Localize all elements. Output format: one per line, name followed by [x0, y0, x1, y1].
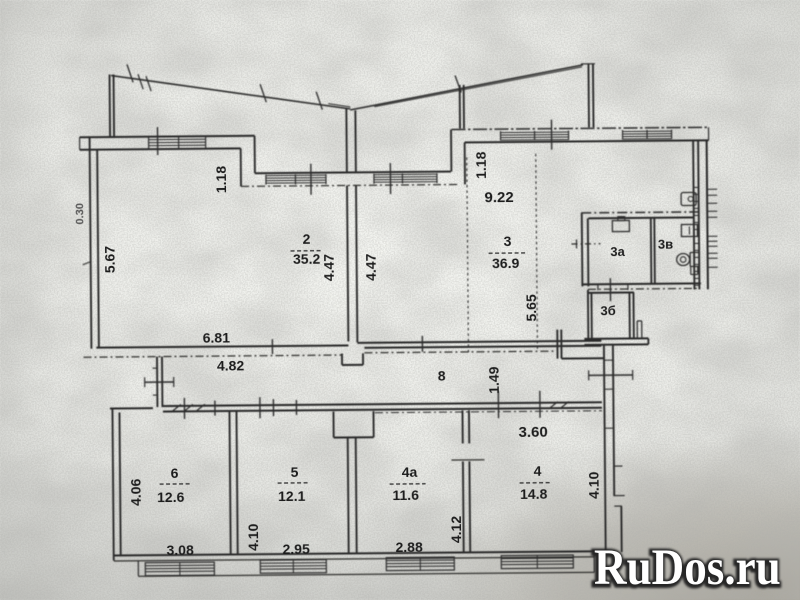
svg-text:3б: 3б — [600, 303, 615, 318]
svg-text:4.10: 4.10 — [245, 523, 261, 551]
svg-text:4.12: 4.12 — [448, 516, 464, 544]
svg-text:2.95: 2.95 — [282, 541, 310, 557]
svg-text:4.47: 4.47 — [363, 253, 379, 281]
svg-text:36.9: 36.9 — [492, 255, 520, 271]
svg-text:3в: 3в — [658, 237, 673, 252]
svg-text:5.65: 5.65 — [523, 294, 539, 322]
svg-text:4.47: 4.47 — [321, 254, 337, 282]
svg-text:4.06: 4.06 — [128, 478, 144, 506]
svg-text:2: 2 — [302, 231, 310, 247]
svg-text:3а: 3а — [610, 244, 625, 259]
svg-text:4.10: 4.10 — [586, 471, 602, 499]
svg-text:8: 8 — [438, 368, 446, 384]
svg-text:RuDos.ru: RuDos.ru — [594, 540, 781, 596]
svg-text:14.8: 14.8 — [520, 486, 548, 502]
svg-text:4: 4 — [534, 463, 542, 479]
svg-text:5.67: 5.67 — [102, 246, 118, 274]
svg-text:1.49: 1.49 — [486, 366, 502, 394]
svg-text:4.82: 4.82 — [217, 357, 245, 373]
svg-text:0.30: 0.30 — [74, 203, 86, 225]
svg-text:2.88: 2.88 — [395, 539, 423, 555]
svg-text:4а: 4а — [402, 464, 418, 480]
svg-text:12.1: 12.1 — [278, 488, 306, 504]
svg-text:6: 6 — [171, 465, 179, 481]
svg-text:11.6: 11.6 — [392, 487, 419, 503]
svg-text:9.22: 9.22 — [484, 189, 513, 206]
svg-text:6.81: 6.81 — [203, 329, 231, 345]
svg-text:12.6: 12.6 — [157, 489, 185, 505]
svg-text:3: 3 — [504, 233, 512, 249]
svg-text:1.18: 1.18 — [473, 151, 489, 179]
svg-text:5: 5 — [291, 464, 299, 480]
svg-text:3.60: 3.60 — [518, 424, 547, 441]
svg-text:1.18: 1.18 — [213, 166, 229, 194]
svg-text:3.08: 3.08 — [166, 542, 194, 558]
svg-text:35.2: 35.2 — [293, 251, 321, 267]
